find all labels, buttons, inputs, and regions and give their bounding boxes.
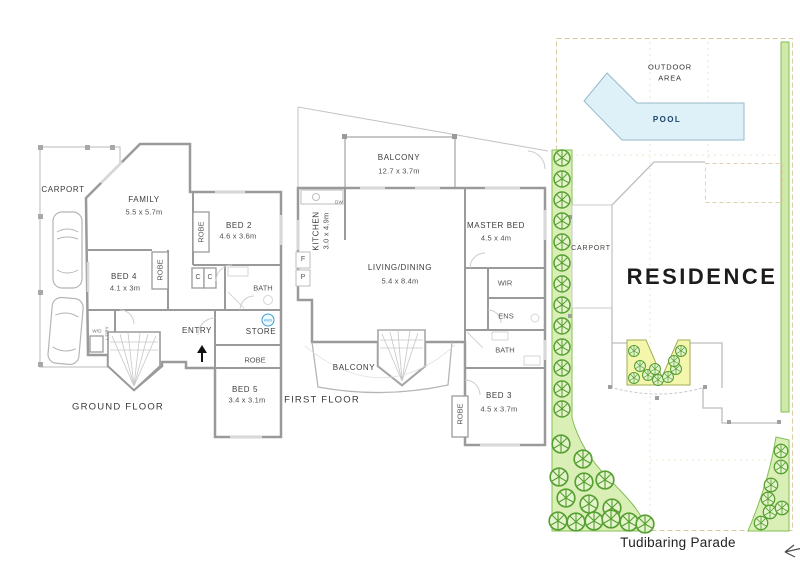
site-label-carport: CARPORT bbox=[571, 245, 611, 253]
label-pantry: P bbox=[301, 274, 306, 282]
label-wd: W/D bbox=[92, 328, 101, 333]
room-label-wir: WIR bbox=[498, 279, 513, 288]
site-label-pool: POOL bbox=[653, 115, 681, 125]
room-label-robe1: ROBE bbox=[197, 221, 206, 242]
car-icon bbox=[53, 212, 82, 288]
room-label-balcony-bottom: BALCONY bbox=[333, 363, 375, 373]
room-label-carport: CARPORT bbox=[41, 185, 84, 195]
hws-badge: HWS bbox=[262, 314, 275, 327]
floorplan-page: CARPORT FAMILY 5.5 x 5.7m BED 2 4.6 x 3.… bbox=[0, 0, 800, 563]
room-dims-balcony-top: 12.7 x 3.7m bbox=[378, 167, 419, 176]
label-dw: DW bbox=[335, 199, 343, 204]
first-stairs bbox=[378, 330, 425, 385]
room-dims-family: 5.5 x 5.7m bbox=[125, 208, 162, 217]
room-label-bath-first: BATH bbox=[495, 346, 514, 355]
room-label-master: MASTER BED bbox=[467, 221, 525, 231]
room-label-bath-ground: BATH bbox=[253, 284, 272, 293]
compass-icon bbox=[785, 545, 800, 557]
room-dims-master: 4.5 x 4m bbox=[481, 234, 511, 243]
room-label-ens: ENS bbox=[498, 312, 513, 321]
room-label-kitchen: KITCHEN 3.0 x 4.9m bbox=[312, 211, 331, 250]
grass-strip-right bbox=[781, 42, 789, 412]
room-dims-bed3: 4.5 x 3.7m bbox=[480, 405, 517, 414]
label-fridge: F bbox=[301, 256, 305, 264]
roof-line bbox=[298, 107, 548, 188]
site-label-outdoor-area: OUTDOOR AREA bbox=[648, 63, 692, 84]
room-label-balcony-top: BALCONY bbox=[378, 153, 420, 163]
driveway-arc bbox=[610, 387, 706, 394]
room-label-robe2: ROBE bbox=[156, 259, 165, 280]
kitchen-dims: 3.0 x 4.9m bbox=[321, 211, 330, 250]
kitchen-name: KITCHEN bbox=[312, 211, 322, 250]
room-label-robe-first: ROBE bbox=[456, 403, 465, 424]
room-label-living: LIVING/DINING bbox=[368, 263, 432, 273]
room-label-bed2: BED 2 bbox=[226, 221, 252, 231]
room-label-family: FAMILY bbox=[128, 195, 159, 205]
trees bbox=[549, 150, 789, 533]
street-name-label: Tudibaring Parade bbox=[620, 535, 736, 551]
cupboard-label-c2: C bbox=[207, 274, 212, 282]
room-label-bed4: BED 4 bbox=[111, 272, 137, 282]
room-label-laundry: L'DRY bbox=[104, 326, 109, 340]
car-icon bbox=[47, 297, 84, 365]
first-floor-title: FIRST FLOOR bbox=[284, 394, 360, 405]
ground-stairs bbox=[108, 332, 160, 390]
room-label-robe3: ROBE bbox=[244, 356, 265, 365]
room-dims-bed4: 4.1 x 3m bbox=[110, 284, 140, 293]
room-dims-bed2: 4.6 x 3.6m bbox=[219, 232, 256, 241]
room-label-store: STORE bbox=[246, 327, 276, 337]
site-label-residence: RESIDENCE bbox=[627, 264, 778, 290]
cupboard-label-c1: C bbox=[195, 274, 200, 282]
upper-deck-dashed bbox=[706, 164, 783, 203]
room-dims-bed5: 3.4 x 3.1m bbox=[228, 396, 265, 405]
room-dims-living: 5.4 x 8.4m bbox=[381, 277, 418, 286]
room-label-bed5: BED 5 bbox=[232, 385, 258, 395]
room-label-bed3: BED 3 bbox=[486, 391, 512, 401]
ground-floor-title: GROUND FLOOR bbox=[72, 401, 164, 412]
room-label-entry: ENTRY bbox=[182, 326, 212, 336]
